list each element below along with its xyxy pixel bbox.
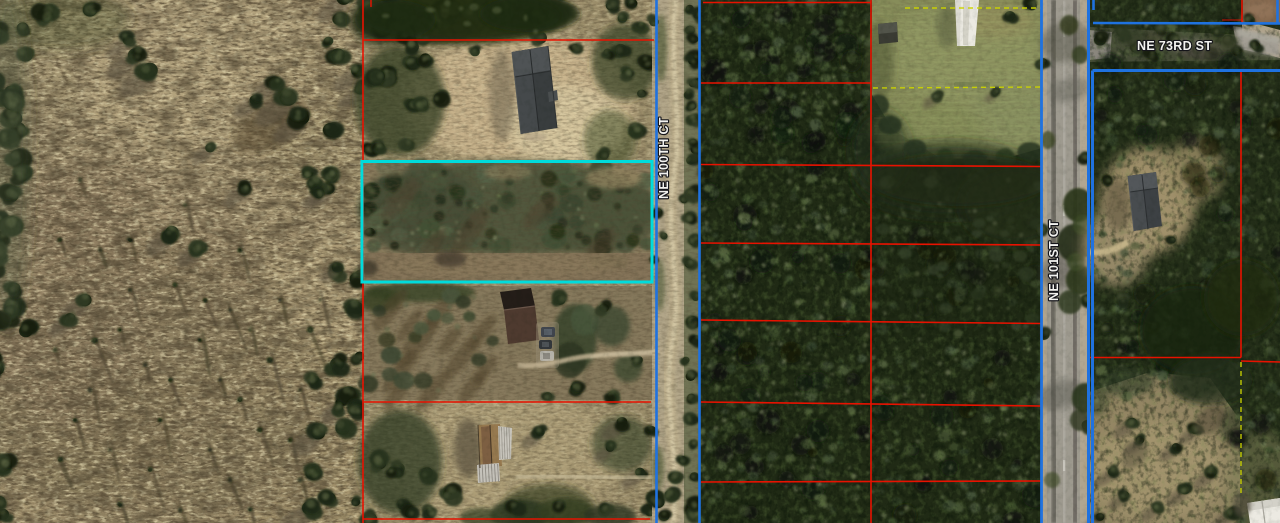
svg-text:NE 100TH CT: NE 100TH CT bbox=[657, 117, 671, 199]
svg-text:NE 101ST CT: NE 101ST CT bbox=[1047, 220, 1061, 301]
svg-text:NE 73RD ST: NE 73RD ST bbox=[1137, 39, 1212, 53]
